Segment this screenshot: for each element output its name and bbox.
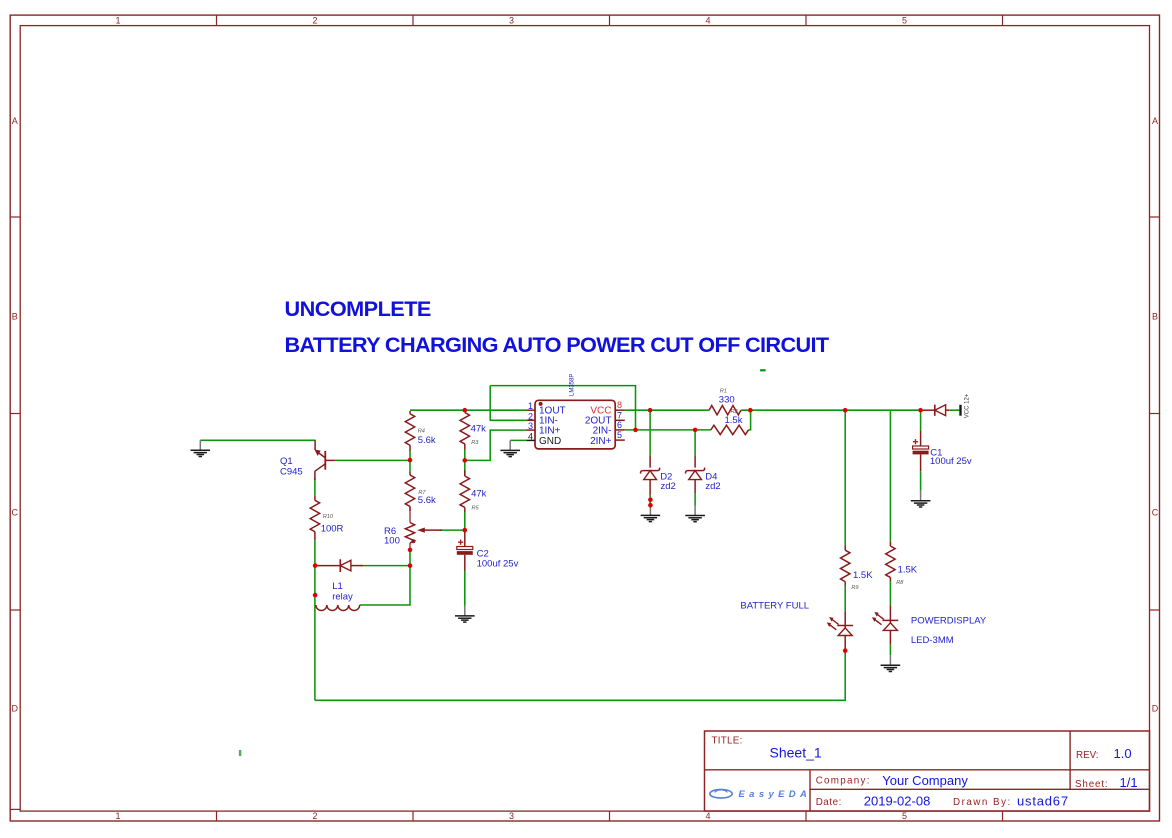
svg-text:zd2: zd2: [661, 481, 676, 492]
svg-text:47k: 47k: [471, 489, 487, 500]
svg-text:2019-02-08: 2019-02-08: [864, 794, 931, 809]
svg-text:3: 3: [528, 421, 533, 431]
svg-text:3: 3: [509, 16, 514, 26]
svg-text:A: A: [1152, 116, 1158, 126]
svg-text:100uf 25v: 100uf 25v: [930, 456, 972, 467]
svg-text:C945: C945: [280, 467, 303, 478]
svg-text:47k: 47k: [471, 423, 487, 434]
svg-text:5.6k: 5.6k: [418, 495, 436, 506]
svg-text:zd2: zd2: [705, 481, 720, 492]
svg-text:LM358P: LM358P: [570, 374, 576, 396]
svg-text:C: C: [12, 508, 19, 518]
svg-text:LED-3MM: LED-3MM: [911, 635, 954, 646]
svg-text:R10: R10: [323, 514, 334, 520]
svg-text:B: B: [12, 312, 18, 322]
svg-text:D: D: [12, 704, 19, 714]
svg-text:Sheet_1: Sheet_1: [770, 745, 822, 761]
svg-text:3: 3: [509, 811, 514, 821]
svg-text:C: C: [1152, 508, 1159, 518]
svg-text:7: 7: [617, 410, 622, 420]
svg-text:Company:: Company:: [816, 775, 871, 786]
svg-text:R4: R4: [418, 429, 425, 435]
svg-text:100R: 100R: [321, 524, 344, 535]
svg-text:B: B: [1152, 312, 1158, 322]
svg-text:1.5k: 1.5k: [725, 415, 743, 426]
svg-text:R9: R9: [851, 585, 858, 591]
svg-text:5: 5: [902, 16, 907, 26]
svg-text:L1: L1: [332, 581, 343, 592]
svg-text:BATTERY FULL: BATTERY FULL: [740, 600, 809, 611]
svg-text:2: 2: [528, 411, 533, 421]
svg-text:5: 5: [902, 811, 907, 821]
svg-text:R8: R8: [896, 580, 904, 586]
svg-text:8: 8: [617, 400, 622, 410]
svg-text:R1: R1: [720, 389, 727, 395]
svg-text:Sheet:: Sheet:: [1075, 779, 1108, 790]
svg-text:6: 6: [617, 420, 622, 430]
svg-text:1.5K: 1.5K: [898, 565, 918, 576]
svg-text:BATTERY CHARGING AUTO POWER CU: BATTERY CHARGING AUTO POWER CUT OFF CIRC…: [285, 332, 830, 357]
svg-text:TITLE:: TITLE:: [712, 736, 743, 747]
svg-text:UNCOMPLETE: UNCOMPLETE: [285, 296, 431, 321]
svg-text:relay: relay: [332, 591, 353, 602]
svg-text:POWERDISPLAY: POWERDISPLAY: [911, 615, 987, 626]
svg-text:1: 1: [115, 811, 120, 821]
svg-text:5: 5: [617, 430, 622, 440]
svg-text:100: 100: [384, 535, 400, 546]
svg-text:GND: GND: [539, 436, 561, 447]
svg-text:Your Company: Your Company: [882, 773, 968, 788]
svg-text:Date:: Date:: [816, 797, 842, 808]
svg-text:REV:: REV:: [1076, 750, 1099, 761]
svg-text:D: D: [1152, 704, 1159, 714]
svg-text:EasyEDA: EasyEDA: [739, 789, 812, 800]
svg-text:330: 330: [719, 395, 735, 406]
svg-text:R5: R5: [472, 506, 480, 512]
svg-text:2: 2: [312, 811, 317, 821]
svg-text:ustad67: ustad67: [1017, 794, 1069, 809]
svg-text:100uf 25v: 100uf 25v: [477, 559, 519, 570]
svg-text:1: 1: [528, 401, 533, 411]
svg-text:5.6k: 5.6k: [418, 435, 436, 446]
svg-text:Drawn By:: Drawn By:: [953, 797, 1012, 808]
svg-text:1/1: 1/1: [1120, 775, 1138, 790]
svg-text:R3: R3: [471, 440, 479, 446]
svg-text:Q1: Q1: [280, 456, 293, 467]
svg-text:VCC 12+: VCC 12+: [964, 393, 970, 418]
svg-text:4: 4: [705, 811, 710, 821]
svg-text:A: A: [12, 116, 18, 126]
svg-text:1: 1: [115, 16, 120, 26]
svg-text:1.0: 1.0: [1114, 746, 1132, 761]
svg-text:2IN+: 2IN+: [590, 436, 612, 447]
svg-text:2: 2: [312, 16, 317, 26]
svg-text:4: 4: [528, 431, 533, 441]
svg-text:1.5K: 1.5K: [853, 570, 873, 581]
svg-text:4: 4: [705, 16, 710, 26]
